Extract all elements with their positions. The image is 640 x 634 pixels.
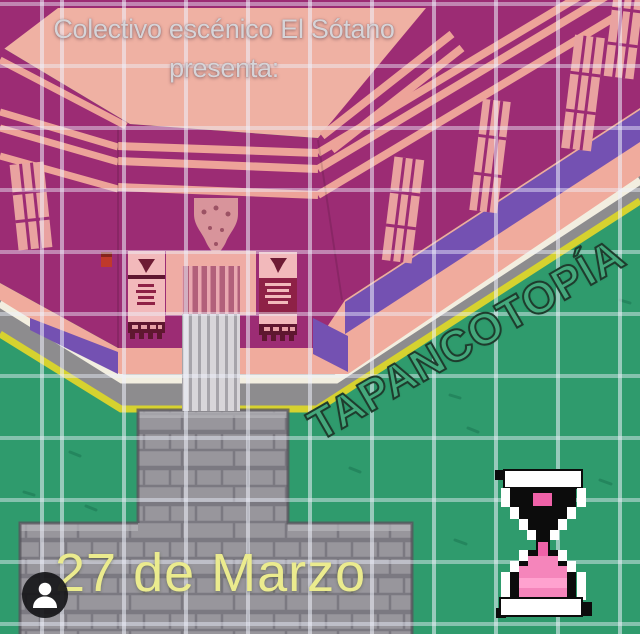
- profile-tag-badge[interactable]: [22, 572, 68, 618]
- show-date: 27 de Marzo: [55, 542, 366, 604]
- presenter-text: Colectivo escénico El Sótano presenta:: [24, 10, 424, 88]
- red-lamp: [101, 252, 112, 267]
- poster: Colectivo escénico El Sótano presenta: T…: [0, 0, 640, 634]
- door: [182, 264, 240, 314]
- banner-left: [128, 251, 165, 339]
- person-badge-icon: [22, 572, 68, 618]
- presenter-line1: Colectivo escénico El Sótano: [24, 10, 424, 49]
- presenter-line2: presenta:: [24, 49, 424, 88]
- door-steps: [182, 312, 240, 411]
- banner-right: [259, 252, 297, 341]
